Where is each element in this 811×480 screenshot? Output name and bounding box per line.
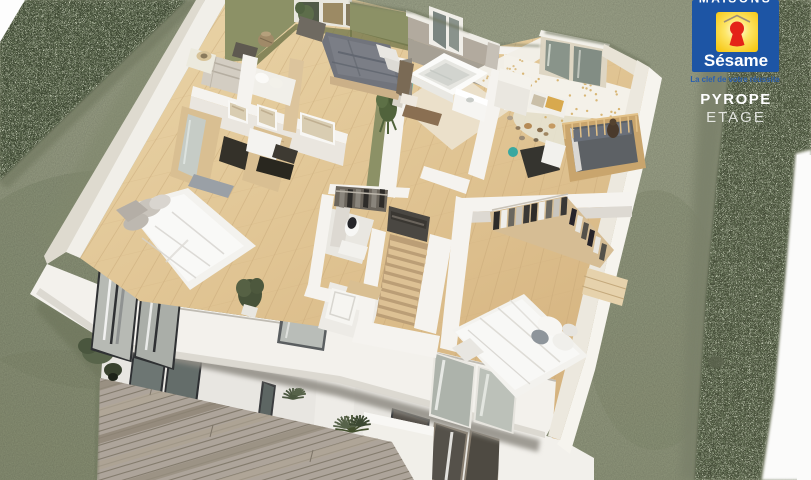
svg-text:MAISONS: MAISONS <box>699 0 773 6</box>
svg-text:ETAGE: ETAGE <box>706 109 766 126</box>
svg-text:La clef de votre réussite: La clef de votre réussite <box>690 75 780 84</box>
svg-text:Sésame: Sésame <box>704 51 768 70</box>
svg-text:PYROPE: PYROPE <box>700 91 772 108</box>
